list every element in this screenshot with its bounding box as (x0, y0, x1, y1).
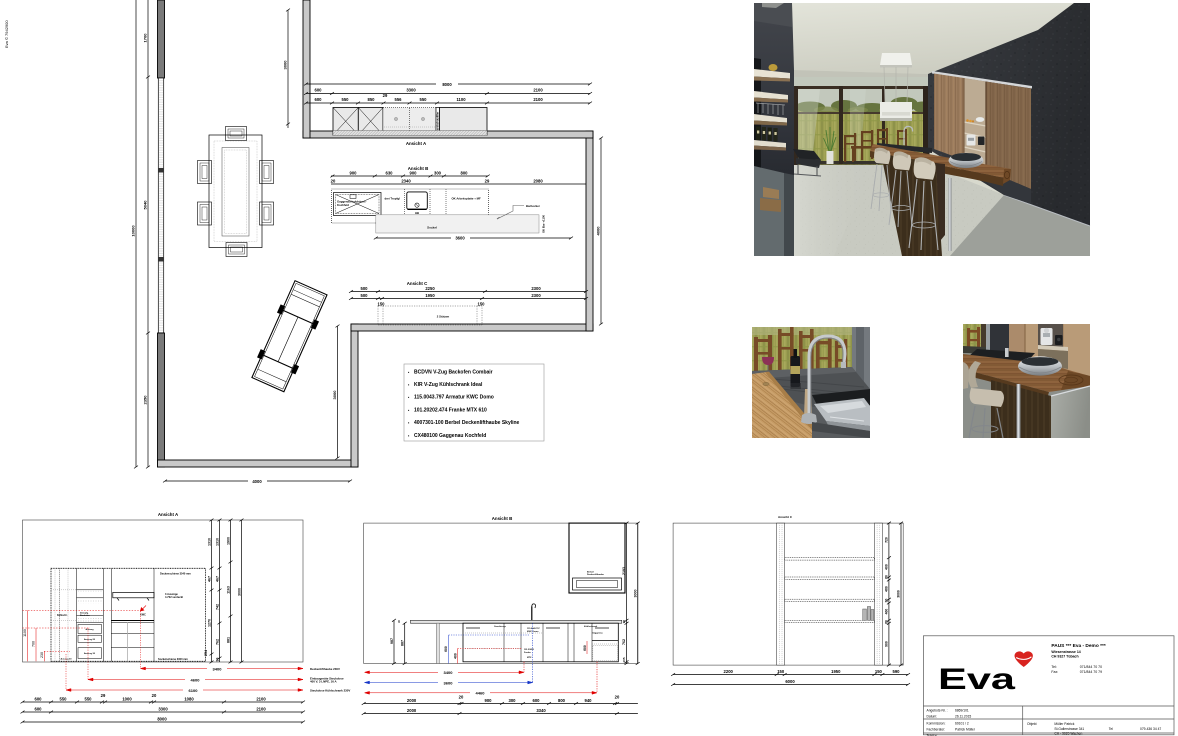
svg-text:Auszug 20: Auszug 20 (84, 638, 96, 641)
svg-text:500: 500 (361, 286, 369, 291)
svg-text:Gaggenau: Gaggenau (592, 633, 603, 635)
svg-text:10000: 10000 (131, 225, 136, 237)
svg-text:071/844 70 79: 071/844 70 79 (1080, 670, 1102, 674)
svg-text:079-436 34 47: 079-436 34 47 (1140, 727, 1161, 731)
svg-text:987: 987 (390, 638, 394, 644)
svg-text:2100: 2100 (533, 88, 543, 93)
svg-text:2340: 2340 (401, 179, 411, 184)
svg-text:150: 150 (777, 669, 785, 674)
svg-text:1310: 1310 (216, 538, 220, 546)
svg-text:300: 300 (509, 698, 517, 703)
svg-text:Müller Patrick: Müller Patrick (1054, 722, 1074, 726)
svg-text:400: 400 (453, 653, 457, 659)
svg-text:20: 20 (331, 179, 336, 184)
svg-text:101.20202.474 Franke MTX 610: 101.20202.474 Franke MTX 610 (414, 407, 487, 413)
svg-text:115.0043.797: 115.0043.797 (527, 627, 540, 630)
svg-text:887: 887 (400, 640, 404, 646)
svg-text:Brandschutzfiller: Brandschutzfiller (436, 112, 440, 133)
svg-text:90: 90 (885, 599, 889, 603)
svg-text:96: 96 (622, 620, 626, 624)
svg-text:Auszug: Auszug (86, 628, 95, 631)
svg-text:Wiesenstrasse 14: Wiesenstrasse 14 (1051, 650, 1080, 654)
svg-text:881: 881 (227, 637, 231, 643)
svg-text:742: 742 (216, 604, 220, 610)
svg-text:69101 / 2: 69101 / 2 (955, 722, 969, 726)
svg-text:drei Tropfgl: drei Tropfgl (385, 197, 401, 201)
svg-text:Kühlschr.: Kühlschr. (57, 615, 68, 617)
svg-text:Auszug 30: Auszug 30 (61, 658, 73, 661)
svg-text:Fax:: Fax: (1051, 670, 1058, 674)
svg-text:Sockelschiene 3300 mm: Sockelschiene 3300 mm (158, 657, 189, 661)
svg-text:630: 630 (386, 171, 394, 176)
svg-text:1950: 1950 (425, 293, 435, 298)
svg-text:2100: 2100 (256, 707, 266, 712)
svg-text:071/844 70 70: 071/844 70 70 (1080, 665, 1102, 669)
svg-text:Ansicht C: Ansicht C (778, 515, 793, 519)
svg-text:HB: HB (415, 211, 419, 215)
svg-text:2250: 2250 (425, 286, 435, 291)
svg-text:KIR V-Zug Kühlschrank Ideal: KIR V-Zug Kühlschrank Ideal (414, 382, 483, 388)
svg-text:1080: 1080 (184, 697, 194, 702)
svg-text:3000: 3000 (283, 60, 288, 70)
svg-text:20: 20 (459, 695, 464, 700)
svg-text:550: 550 (85, 697, 93, 702)
svg-text:900: 900 (485, 698, 493, 703)
svg-text:2300: 2300 (531, 293, 541, 298)
svg-text:600: 600 (583, 645, 587, 651)
svg-text:3340: 3340 (536, 708, 546, 713)
svg-text:3600: 3600 (455, 236, 465, 241)
svg-text:4-702 verdeckt: 4-702 verdeckt (165, 595, 183, 599)
svg-text:KWC Domo: KWC Domo (527, 631, 539, 633)
svg-text:2100: 2100 (256, 697, 266, 702)
svg-text:Geschirrsp.: Geschirrsp. (494, 626, 507, 628)
svg-text:600: 600 (444, 646, 448, 652)
svg-text:1000: 1000 (122, 697, 132, 702)
svg-text:OK Bar +1100: OK Bar +1100 (542, 214, 546, 233)
svg-text:Ansicht B: Ansicht B (492, 516, 513, 521)
svg-text:850: 850 (368, 97, 376, 102)
svg-text:6000: 6000 (785, 679, 795, 684)
svg-text:1950: 1950 (831, 669, 841, 674)
svg-text:400: 400 (885, 564, 889, 570)
svg-text:2000: 2000 (407, 698, 417, 703)
svg-text:105: 105 (622, 657, 626, 662)
svg-text:600: 600 (315, 88, 323, 93)
svg-text:3300: 3300 (158, 707, 168, 712)
svg-text:20: 20 (615, 695, 620, 700)
svg-text:762: 762 (216, 639, 220, 645)
svg-text:Objekt: Objekt (1027, 722, 1037, 726)
svg-text:800: 800 (461, 171, 469, 176)
svg-text:Eva: Eva (938, 663, 1015, 696)
svg-text:Ansicht A: Ansicht A (158, 512, 179, 517)
svg-text:3400: 3400 (444, 670, 454, 675)
svg-text:254: 254 (204, 650, 208, 656)
svg-text:1700: 1700 (143, 33, 148, 43)
svg-text:60: 60 (885, 575, 889, 579)
svg-text:St.Gallerstrasse 341: St.Gallerstrasse 341 (1054, 727, 1084, 731)
svg-text:Fachberater:: Fachberater: (927, 727, 946, 731)
svg-text:4460: 4460 (476, 691, 486, 696)
svg-text:550: 550 (342, 97, 350, 102)
svg-text:Tel: Tel (1109, 727, 1113, 731)
svg-text:600: 600 (35, 707, 43, 712)
svg-text:3400: 3400 (213, 666, 223, 671)
svg-text:Barhocker: Barhocker (526, 204, 541, 208)
svg-text:300: 300 (434, 171, 442, 176)
svg-text:400 V, 3 LNPE, 16 A: 400 V, 3 LNPE, 16 A (310, 680, 338, 684)
svg-text:Angebots-Nr. :: Angebots-Nr. : (927, 709, 948, 713)
svg-text:Deckenlifthaube: Deckenlifthaube (587, 573, 605, 576)
svg-text:600: 600 (315, 97, 323, 102)
svg-text:Kühlschrank: Kühlschrank (584, 626, 598, 628)
svg-text:Eva © 7942900: Eva © 7942900 (4, 20, 9, 48)
svg-text:Kommission:: Kommission: (927, 722, 946, 726)
svg-text:2300: 2300 (531, 286, 541, 291)
svg-text:Patrick Müller: Patrick Müller (955, 727, 976, 731)
svg-text:3300: 3300 (406, 88, 416, 93)
svg-text:6869/101: 6869/101 (955, 709, 969, 713)
svg-text:2350: 2350 (143, 395, 148, 405)
svg-text:762: 762 (622, 639, 626, 645)
svg-text:900: 900 (350, 171, 358, 176)
svg-text:600: 600 (35, 697, 43, 702)
svg-text:Auszug 30: Auszug 30 (84, 652, 96, 655)
svg-text:Sockel: Sockel (427, 226, 437, 230)
svg-text:1100: 1100 (23, 629, 27, 637)
svg-text:5040: 5040 (143, 200, 148, 210)
svg-text:400: 400 (885, 609, 889, 615)
svg-text:CX480100 Gaggenau Kochfeld: CX480100 Gaggenau Kochfeld (414, 433, 486, 439)
svg-text:96: 96 (216, 658, 220, 662)
svg-text:460: 460 (885, 586, 889, 592)
svg-text:500: 500 (361, 293, 369, 298)
svg-text:467: 467 (208, 576, 212, 582)
svg-text:800: 800 (558, 698, 566, 703)
svg-text:1270: 1270 (208, 619, 212, 627)
svg-text:3000: 3000 (633, 590, 637, 598)
svg-text:29: 29 (485, 179, 490, 184)
svg-text:115.0043.797 Armatur KWC Domo: 115.0043.797 Armatur KWC Domo (414, 395, 494, 401)
svg-text:60: 60 (885, 620, 889, 624)
svg-text:1163: 1163 (227, 586, 231, 594)
svg-text:90: 90 (397, 620, 401, 624)
svg-text:4000: 4000 (596, 226, 601, 236)
svg-text:Steckdose Kühlschrank 230V: Steckdose Kühlschrank 230V (310, 688, 350, 692)
svg-text:3000: 3000 (897, 590, 901, 598)
svg-text:2100: 2100 (533, 97, 543, 102)
svg-text:8000: 8000 (442, 82, 452, 87)
svg-text:467: 467 (216, 576, 220, 582)
svg-text:4007301-100 Berbel Deckenlifth: 4007301-100 Berbel Deckenlifthaube Skyli… (414, 420, 520, 426)
svg-text:Franke: Franke (524, 651, 532, 654)
svg-text:101.20202: 101.20202 (524, 649, 535, 651)
svg-text:29: 29 (383, 93, 388, 98)
svg-text:BCDVN V-Zug Backofen Combair: BCDVN V-Zug Backofen Combair (414, 369, 493, 375)
svg-text:4600: 4600 (191, 677, 201, 682)
svg-text:29: 29 (101, 693, 106, 698)
svg-text:600: 600 (533, 698, 541, 703)
svg-text:2000: 2000 (407, 708, 417, 713)
svg-text:20: 20 (152, 693, 157, 698)
svg-text:700: 700 (32, 641, 36, 647)
svg-text:Kochfeld: Kochfeld (337, 203, 349, 207)
svg-text:3000: 3000 (238, 588, 242, 596)
svg-text:3600: 3600 (444, 680, 454, 685)
svg-text:1900: 1900 (227, 537, 231, 545)
svg-text:PAUS *** Eva - Demo ***: PAUS *** Eva - Demo *** (1051, 643, 1105, 649)
svg-text:Ansicht A: Ansicht A (406, 141, 427, 146)
svg-text:8000: 8000 (157, 717, 167, 722)
svg-text:940: 940 (585, 698, 593, 703)
svg-text:4000: 4000 (252, 479, 262, 484)
svg-text:900: 900 (885, 641, 889, 647)
svg-text:Deckenlifthaube 230V: Deckenlifthaube 230V (310, 667, 340, 671)
svg-text:CH - 9020 Wachen: CH - 9020 Wachen (1054, 732, 1082, 736)
svg-text:MTX: MTX (527, 657, 532, 659)
svg-text:1100: 1100 (456, 97, 466, 102)
svg-text:556: 556 (395, 97, 403, 102)
svg-text:550: 550 (60, 697, 68, 702)
svg-text:2193: 2193 (622, 567, 626, 575)
svg-text:Deckenschiene 3540 mm: Deckenschiene 3540 mm (160, 572, 191, 576)
svg-text:2080: 2080 (533, 179, 543, 184)
svg-text:2 Stützen: 2 Stützen (437, 315, 450, 319)
svg-text:6100: 6100 (189, 688, 199, 693)
svg-text:230: 230 (40, 652, 44, 658)
svg-text:1310: 1310 (208, 538, 212, 546)
svg-text:720: 720 (885, 537, 889, 543)
svg-text:OK Arbeitsplatte + MF: OK Arbeitsplatte + MF (452, 197, 481, 201)
svg-text:550: 550 (420, 97, 428, 102)
svg-text:26.11.2015: 26.11.2015 (955, 714, 971, 718)
svg-text:900: 900 (410, 171, 418, 176)
svg-text:Tel:: Tel: (1051, 665, 1056, 669)
svg-text:150: 150 (875, 669, 883, 674)
svg-text:590: 590 (893, 669, 901, 674)
svg-text:2200: 2200 (724, 669, 734, 674)
svg-text:KWC: KWC (140, 614, 146, 617)
svg-text:3000: 3000 (332, 390, 337, 400)
svg-text:Backofen: Backofen (80, 615, 91, 617)
svg-text:Datum:: Datum: (927, 714, 938, 718)
svg-text:CH 9327 Tübach: CH 9327 Tübach (1051, 655, 1078, 659)
